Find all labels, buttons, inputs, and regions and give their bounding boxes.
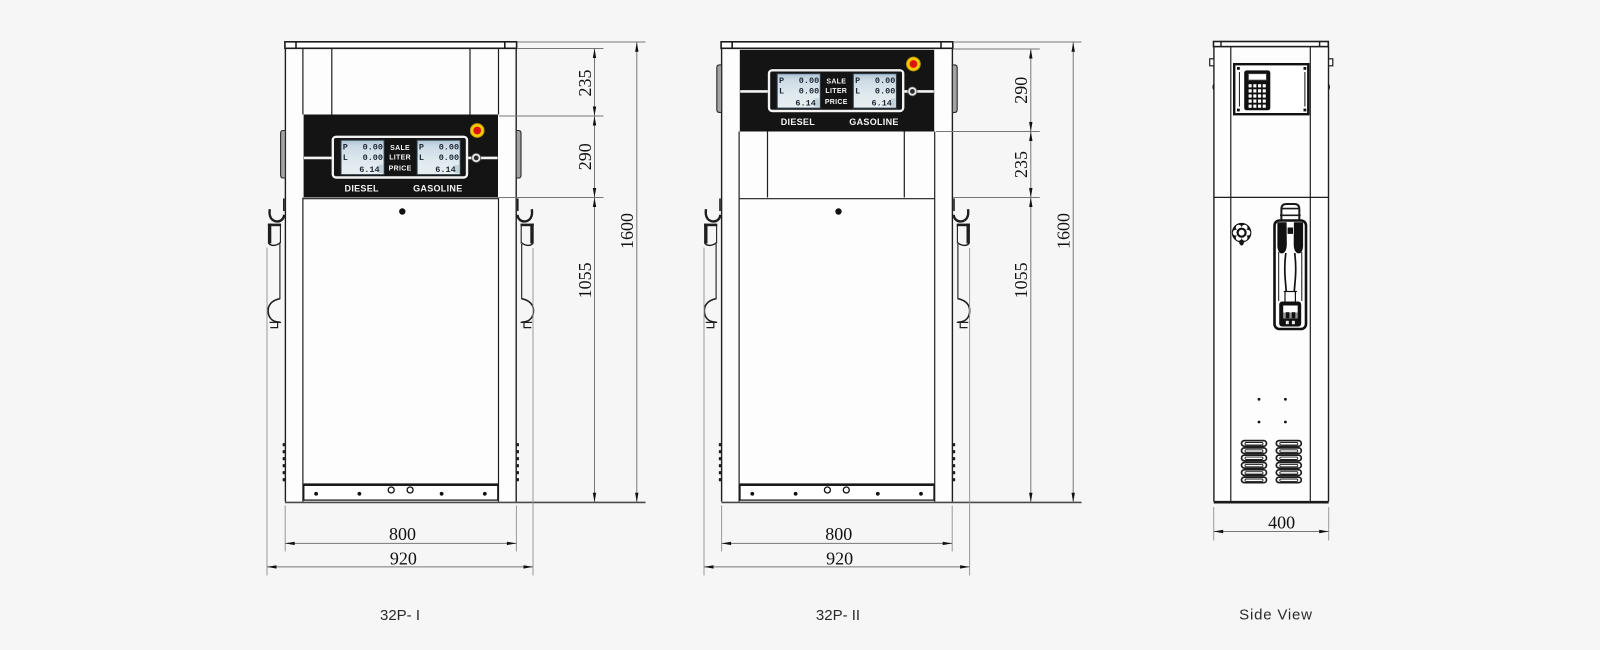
svg-text:800: 800 xyxy=(389,524,416,544)
svg-text:400: 400 xyxy=(1268,512,1295,532)
svg-text:235: 235 xyxy=(1011,151,1031,178)
svg-text:920: 920 xyxy=(826,548,853,568)
svg-text:920: 920 xyxy=(390,548,417,568)
svg-text:1055: 1055 xyxy=(1011,262,1031,298)
svg-text:1600: 1600 xyxy=(1054,213,1074,249)
svg-text:290: 290 xyxy=(1011,77,1031,104)
svg-text:Side View: Side View xyxy=(1239,607,1313,624)
svg-text:32P- II: 32P- II xyxy=(816,607,860,624)
svg-text:235: 235 xyxy=(575,70,595,97)
svg-text:800: 800 xyxy=(825,524,852,544)
svg-text:1600: 1600 xyxy=(617,213,637,249)
svg-text:1055: 1055 xyxy=(575,262,595,298)
svg-text:32P- I: 32P- I xyxy=(380,607,420,624)
svg-text:290: 290 xyxy=(575,143,595,170)
